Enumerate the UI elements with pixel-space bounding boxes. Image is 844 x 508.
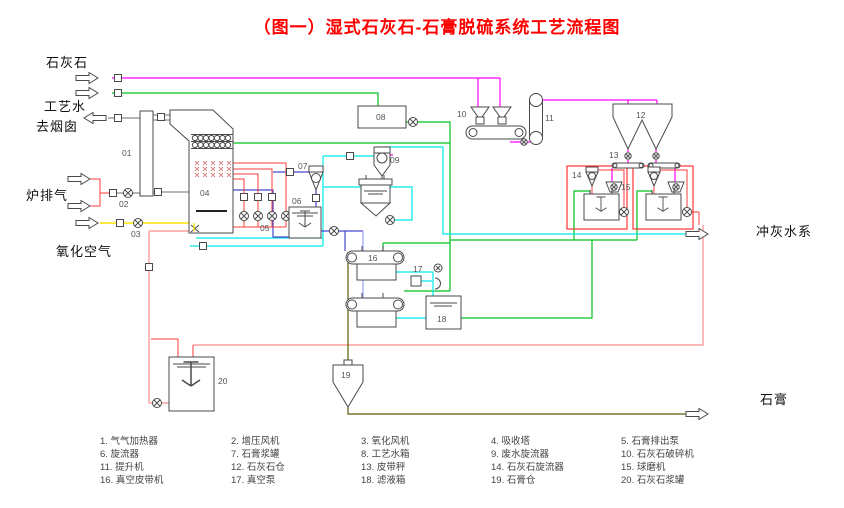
limestone-cyclone-14-right	[648, 167, 660, 186]
process-flow-diagram: （图一）湿式石灰石-石膏脱硫系统工艺流程图 石灰石 工艺水 去烟囱 炉排气 氧化…	[0, 0, 844, 508]
ball-mill-15-left	[606, 182, 622, 192]
equipment-tag-12: 12	[636, 110, 646, 120]
equipment-tag-19: 19	[341, 370, 351, 380]
furnace-exhaust-arrow-bottom	[68, 201, 90, 212]
equipment-tag-18: 18	[437, 314, 447, 324]
equipment-tag-15: 15	[621, 182, 631, 192]
gas-gas-heater-01	[140, 111, 153, 196]
legend-item: 10. 石灰石破碎机	[621, 448, 694, 460]
limestone-inlet-arrow	[76, 73, 98, 84]
oxidation-fan-03	[134, 219, 143, 228]
vacuum-belt-16	[346, 246, 404, 280]
absorber-tower-04	[170, 110, 233, 233]
equipment-tag-13: 13	[609, 150, 619, 160]
mill-slurry-tank-left	[584, 190, 619, 220]
process-flow-diagram-page: （图一）湿式石灰石-石膏脱硫系统工艺流程图 石灰石 工艺水 去烟囱 炉排气 氧化…	[0, 0, 844, 508]
equipment-tag-09: 09	[390, 155, 400, 165]
gypsum-slurry-tank-06	[289, 207, 321, 238]
legend-item: 13. 皮带秤	[361, 461, 406, 473]
ball-mill-15-right	[668, 182, 684, 192]
equipment-tag-11: 11	[545, 113, 554, 123]
gypsum-silo-19	[333, 360, 363, 407]
gypsum-cyclone-07	[309, 166, 323, 190]
legend-item: 20. 石灰石浆罐	[621, 474, 685, 486]
mill-slurry-tank-right	[646, 190, 681, 220]
filtrate-tank-18	[426, 296, 461, 329]
legend-item: 8. 工艺水箱	[361, 448, 410, 460]
wastewater-cyclone-09	[374, 147, 390, 180]
label-furnace-exhaust: 炉排气	[26, 188, 68, 203]
mill-tank-pump-left	[620, 208, 629, 217]
legend-item: 1. 气气加热器	[100, 435, 159, 447]
cyclone-underflow-valve	[313, 195, 320, 202]
vacuum-belt-2	[346, 293, 404, 327]
wastewater-tank	[359, 175, 392, 216]
limestone-crusher-10	[471, 107, 511, 124]
wastewater-pump	[386, 216, 395, 225]
legend-item: 7. 石膏浆罐	[231, 448, 280, 460]
legend-item: 4. 吸收塔	[491, 435, 531, 447]
equipment-tag-20: 20	[218, 376, 228, 386]
label-oxidation-air: 氧化空气	[56, 244, 112, 259]
equipment-tag-16: 16	[368, 253, 378, 263]
legend-item: 17. 真空泵	[231, 474, 276, 486]
equipment-tag-05: 05	[260, 223, 270, 233]
process-water-pump	[409, 118, 418, 127]
equipment-tag-06: 06	[292, 196, 302, 206]
label-process-water: 工艺水	[44, 99, 86, 114]
label-to-chimney: 去烟囱	[36, 119, 78, 134]
belt-conveyor	[466, 126, 526, 139]
legend-item: 12. 石灰石仓	[231, 461, 285, 473]
equipment-tag-08: 08	[376, 112, 386, 122]
legend-item: 3. 氧化风机	[361, 435, 410, 447]
legend-item: 18. 滤液箱	[361, 474, 405, 486]
equipment-tag-01: 01	[122, 148, 132, 158]
booster-fan-02	[124, 189, 133, 198]
legend-item: 19. 石膏仓	[491, 474, 536, 486]
legend-item: 11. 提升机	[100, 461, 144, 473]
equipment-tag-02: 02	[119, 199, 129, 209]
bucket-elevator-11	[530, 94, 543, 145]
furnace-exhaust-arrow-top	[68, 174, 90, 185]
oxidation-air-pipe-group	[100, 223, 194, 231]
equipment-tag-07: 07	[298, 161, 308, 171]
equipment-tag-17: 17	[413, 264, 423, 274]
legend: 1. 气气加热器 2. 增压风机 3. 氧化风机 4. 吸收塔 5. 石膏排出泵…	[100, 435, 694, 486]
equipment-tag-14: 14	[572, 170, 582, 180]
legend-item: 5. 石膏排出泵	[621, 435, 680, 447]
limestone-cyclone-14-left	[586, 167, 598, 186]
label-ash-water-system: 冲灰水系	[756, 224, 812, 239]
ash-water-outlet-arrow	[686, 229, 708, 240]
legend-item: 2. 增压风机	[231, 435, 280, 447]
limestone-slurry-tank-20	[169, 357, 214, 411]
to-chimney-arrow	[84, 113, 106, 124]
mill-tank-pump-right	[683, 208, 692, 217]
equipment-tag-03: 03	[131, 229, 141, 239]
legend-item: 15. 球磨机	[621, 461, 666, 473]
slurry-tank-discharge-pump	[330, 227, 339, 236]
legend-item: 14. 石灰石旋流器	[491, 461, 564, 473]
gypsum-outlet-arrow	[686, 409, 708, 420]
limestone-slurry-pump	[153, 399, 162, 408]
transfer-point	[521, 139, 527, 145]
label-gypsum: 石膏	[760, 392, 788, 407]
legend-item: 6. 旋流器	[100, 448, 140, 460]
equipment-tag-10: 10	[457, 109, 467, 119]
recirculation-pumps-05	[240, 212, 291, 221]
process-water-inlet-arrow	[76, 88, 98, 99]
recirculation-pump-valves	[241, 194, 276, 201]
gypsum-cake-pipe-group	[348, 252, 686, 414]
furnace-exhaust-pipe-group	[90, 179, 112, 206]
legend-item: 9. 废水旋流器	[491, 448, 550, 460]
legend-item: 16. 真空皮带机	[100, 474, 164, 486]
oxidation-air-inlet-arrow	[76, 218, 98, 229]
page-title: （图一）湿式石灰石-石膏脱硫系统工艺流程图	[254, 17, 621, 37]
label-limestone: 石灰石	[46, 55, 88, 70]
equipment-tag-04: 04	[200, 188, 210, 198]
